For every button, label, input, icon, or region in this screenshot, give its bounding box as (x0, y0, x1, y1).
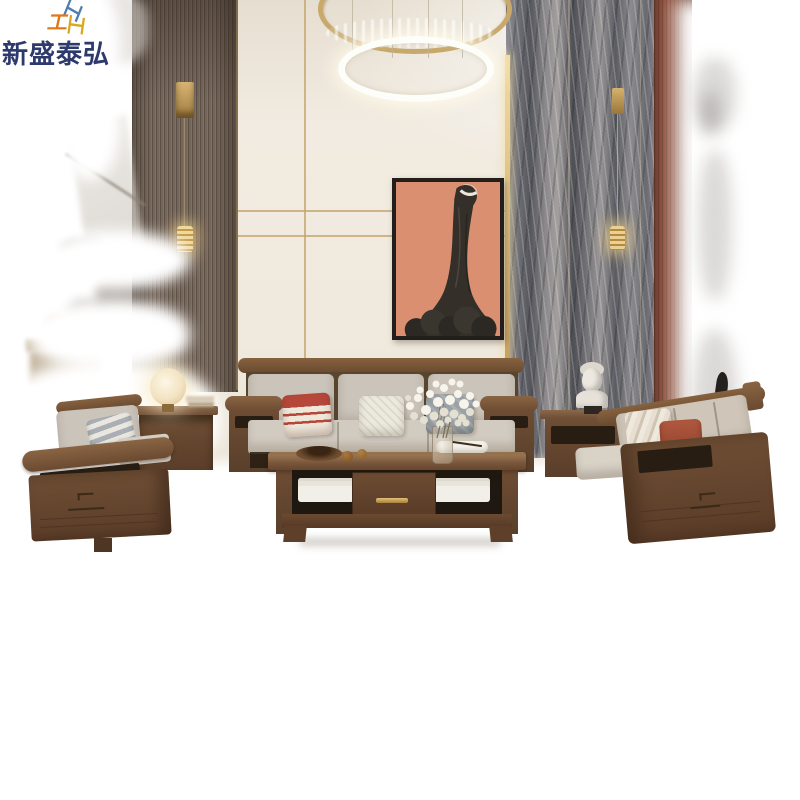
stacked-books (188, 402, 214, 407)
white-knit-pillow (359, 396, 404, 436)
sconce-cord-right (617, 114, 618, 226)
shadow-smudge (700, 92, 720, 136)
logo-yellow-bar-icon: 工 (64, 14, 87, 37)
drawer-gold-handle (376, 498, 408, 503)
sofa-back-rail (238, 358, 524, 373)
sconce-pendant-right (610, 226, 625, 250)
sphere-lamp-base (162, 404, 174, 412)
white-background-bottom (0, 556, 800, 800)
cloud-carving-motif (68, 497, 105, 511)
bust-sculpture (582, 368, 602, 392)
white-blob (60, 60, 120, 180)
wall-sconce-right (612, 88, 624, 114)
red-striped-pillow (282, 392, 333, 437)
side-table-left (134, 406, 218, 415)
armchair-leg (94, 538, 112, 552)
wall-gold-vertical-trim (304, 0, 306, 368)
seat-seam (337, 422, 339, 452)
wall-sconce-left (176, 82, 194, 118)
coffee-table-floor-shadow (300, 538, 500, 546)
coffee-table-foot (283, 526, 307, 542)
shadow-smudge (698, 150, 732, 300)
white-blob (40, 230, 190, 290)
fruit-bowl (296, 446, 342, 461)
portrait-woman-black-dress (396, 182, 500, 336)
folded-towels (434, 478, 490, 502)
baby-breath-flowers (400, 376, 486, 438)
coffee-table-drawer (352, 472, 436, 516)
marble-seam (640, 0, 641, 458)
marble-feature-wall (506, 0, 658, 458)
sconce-cord-left (184, 118, 185, 226)
marble-seam (568, 0, 570, 458)
fruit (357, 449, 367, 459)
chandelier-glow-ring (338, 36, 494, 102)
wood-panel-gold-edge (236, 0, 238, 390)
product-photo-canvas: 工 工 工 新盛泰弘 (0, 0, 800, 800)
sphere-table-lamp (150, 368, 186, 406)
fruit (342, 451, 353, 462)
coffee-table-foot (489, 526, 513, 542)
folded-towels (298, 478, 354, 502)
brand-watermark-text: 新盛泰弘 (2, 34, 142, 71)
coffee-table-plinth (282, 514, 512, 528)
wall-art-portrait (392, 178, 504, 340)
side-table-shelf (551, 426, 615, 444)
